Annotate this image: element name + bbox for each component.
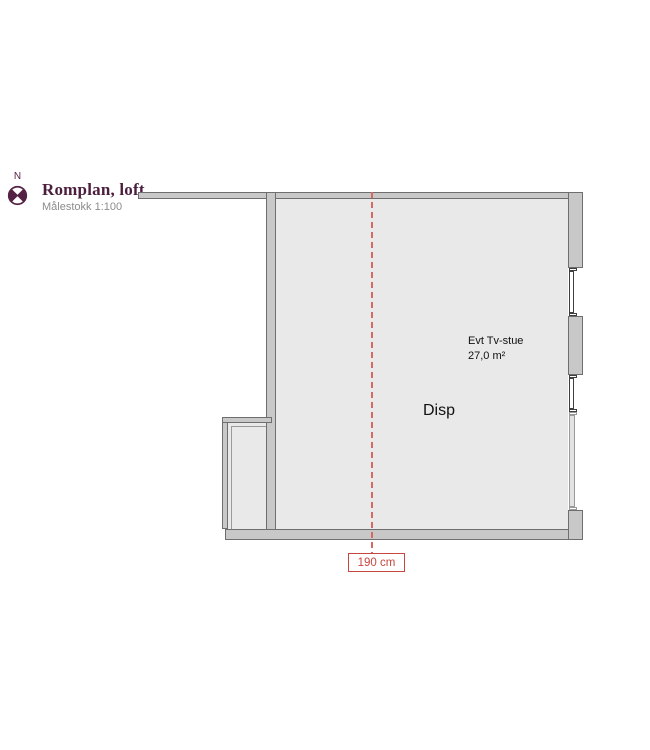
annex-wall-left <box>222 417 228 529</box>
wall-right-segment <box>568 192 583 268</box>
compass-north-label: N <box>7 171 28 182</box>
window-1 <box>568 268 583 316</box>
wall-right-segment <box>568 510 583 540</box>
window-2 <box>568 375 583 412</box>
compass-icon <box>7 185 28 206</box>
dimension-dashed-line <box>371 192 373 553</box>
wall-right-segment <box>568 316 583 375</box>
wall-top <box>138 192 583 199</box>
annex-inner-line <box>231 426 266 529</box>
window-glass <box>569 271 574 313</box>
annex-wall-top <box>222 417 272 423</box>
room-unit-name: Evt Tv-stue <box>468 334 523 349</box>
floorplan-canvas: N Romplan, loft Målestokk 1:100 <box>0 0 650 750</box>
room-unit-area: 27,0 m² <box>468 349 523 364</box>
dimension-label: 190 cm <box>348 553 405 572</box>
wall-bottom <box>225 529 583 540</box>
room-interior <box>272 196 568 530</box>
window-3 <box>568 412 583 510</box>
wall-right <box>568 192 583 540</box>
window-glass <box>569 378 574 409</box>
page-title: Romplan, loft <box>42 180 145 200</box>
room-name-label: Disp <box>423 402 455 420</box>
window-glass <box>569 415 575 507</box>
scale-label: Målestokk 1:100 <box>42 201 122 213</box>
wall-left <box>266 192 276 540</box>
room-area-label: Evt Tv-stue 27,0 m² <box>468 334 523 364</box>
